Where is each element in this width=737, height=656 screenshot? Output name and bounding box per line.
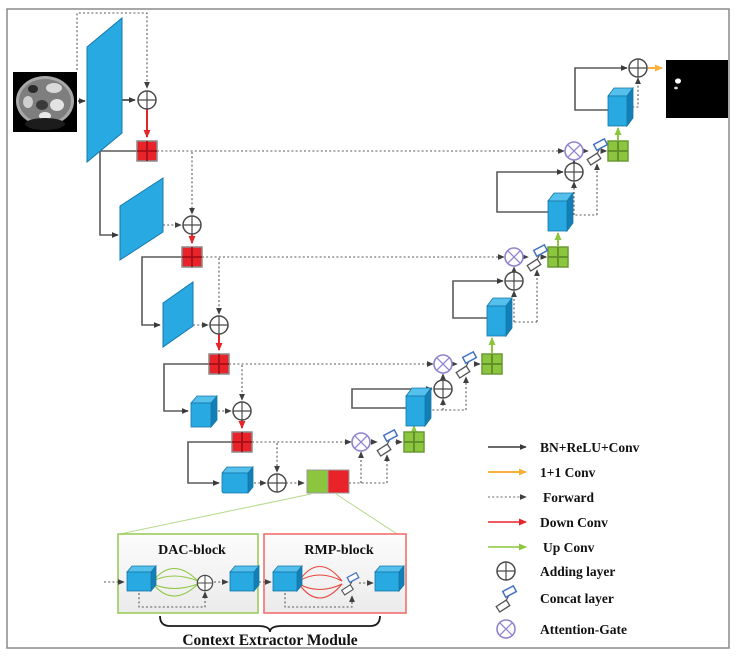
attention-gate-icon [497, 620, 515, 638]
downsample-feature-4 [232, 432, 252, 452]
legend-label: BN+ReLU+Conv [540, 440, 640, 455]
adding-node-dec-2 [565, 163, 583, 181]
dac-block-label: DAC-block [158, 543, 226, 558]
legend-label: Attention-Gate [540, 622, 627, 637]
adding-node-dec-3 [505, 272, 523, 290]
downsample-feature-2 [182, 247, 202, 267]
rmp-conv-box-in [273, 566, 302, 591]
decoder-conv-box-1 [608, 88, 633, 126]
attention-gate-3 [434, 355, 452, 373]
adding-node-enc-4 [233, 402, 251, 420]
attention-gate-1 [565, 142, 583, 160]
adding-node-dec-4 [434, 380, 452, 398]
legend-label: Concat layer [540, 591, 614, 606]
attention-gate-4 [352, 433, 370, 451]
upsample-feature-4 [404, 432, 424, 452]
upsample-feature-2 [548, 247, 568, 267]
context-extractor-block [307, 470, 349, 493]
legend-label: Down Conv [540, 515, 608, 530]
upsample-feature-3 [482, 354, 502, 374]
rmp-block-label: RMP-block [304, 543, 373, 558]
attention-gate-2 [505, 248, 523, 266]
adding-node-enc-5 [268, 474, 286, 492]
legend-label: Adding layer [540, 564, 615, 579]
adding-node-enc-3 [210, 316, 228, 334]
adding-node-output [629, 59, 647, 77]
rmp-conv-box-out [375, 566, 404, 591]
downsample-feature-3 [209, 354, 229, 374]
rmp-mini-block [328, 470, 349, 493]
architecture-diagram: DAC-block RMP-block [0, 0, 737, 656]
downsample-feature-1 [137, 141, 157, 161]
encoder-conv-box-4 [191, 396, 217, 427]
upsample-feature-1 [608, 141, 628, 161]
input-ct-image [13, 72, 77, 132]
figure-canvas: DAC-block RMP-block [0, 0, 737, 656]
legend-label: 1+1 Conv [540, 465, 596, 480]
dac-conv-box-out [230, 566, 259, 591]
adding-node-enc-2 [183, 216, 201, 234]
dac-adding-node [197, 575, 212, 590]
output-segmentation-image [666, 60, 728, 118]
decoder-conv-box-4 [406, 388, 431, 426]
dac-conv-box-in [127, 566, 156, 591]
context-extractor-label: Context Extractor Module [182, 632, 357, 649]
encoder-conv-box-5 [222, 467, 253, 493]
adding-layer-icon [497, 562, 515, 580]
decoder-conv-box-2 [548, 193, 573, 231]
dac-mini-block [307, 470, 328, 493]
legend-label: Forward [543, 490, 594, 505]
adding-node-enc-1 [138, 91, 156, 109]
decoder-conv-box-3 [487, 298, 512, 336]
legend-label: Up Conv [543, 540, 595, 555]
